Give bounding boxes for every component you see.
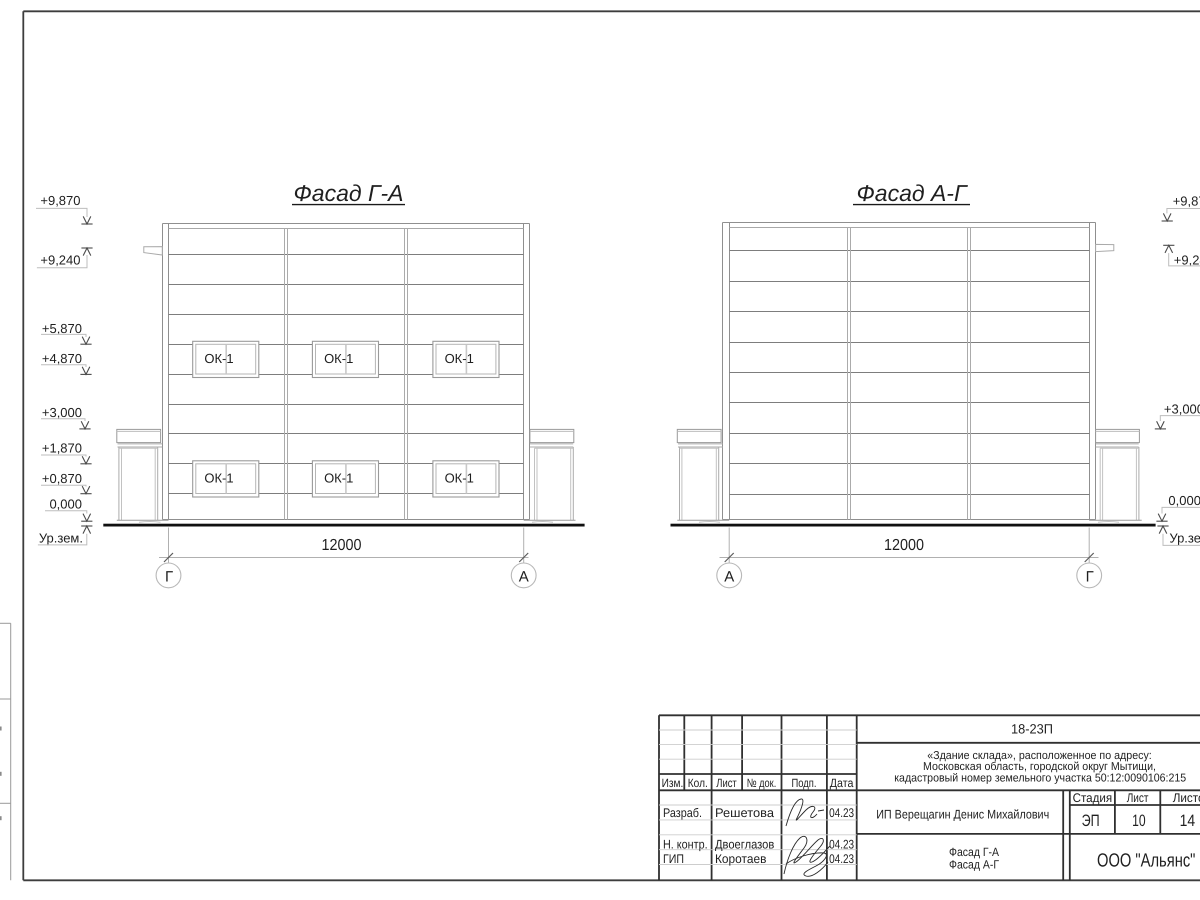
svg-text:12000: 12000 xyxy=(322,537,362,554)
svg-text:Стадия: Стадия xyxy=(1073,791,1113,805)
svg-text:ОК-1: ОК-1 xyxy=(324,471,353,486)
svg-text:Коротаев: Коротаев xyxy=(715,852,767,866)
svg-text:+9,240: +9,240 xyxy=(1174,253,1200,268)
svg-text:04.23: 04.23 xyxy=(829,837,854,851)
svg-text:18-23П: 18-23П xyxy=(1011,722,1053,737)
svg-text:0,000: 0,000 xyxy=(1168,493,1200,508)
svg-text:+5,870: +5,870 xyxy=(42,321,82,336)
svg-text:ИП Верещагин Денис Михайлович: ИП Верещагин Денис Михайлович xyxy=(876,807,1049,821)
svg-text:Г: Г xyxy=(1086,569,1094,586)
svg-text:ОК-1: ОК-1 xyxy=(204,351,233,366)
svg-text:ГИП: ГИП xyxy=(663,852,684,866)
svg-text:+9,240: +9,240 xyxy=(40,252,80,267)
svg-text:Московская область, городской: Московская область, городской округ Мыти… xyxy=(923,761,1156,773)
svg-text:Ур.зем.: Ур.зем. xyxy=(1169,531,1200,546)
svg-text:Фасад Г-А: Фасад Г-А xyxy=(294,180,404,206)
svg-text:Разраб.: Разраб. xyxy=(663,806,702,820)
svg-text:04.23: 04.23 xyxy=(829,806,854,820)
svg-text:А: А xyxy=(519,569,529,586)
svg-text:04.23: 04.23 xyxy=(829,852,854,866)
svg-text:ОК-1: ОК-1 xyxy=(445,471,474,486)
svg-text:ОК-1: ОК-1 xyxy=(324,351,353,366)
svg-text:12000: 12000 xyxy=(884,537,924,554)
svg-text:ООО "Альянс": ООО "Альянс" xyxy=(1097,851,1195,872)
svg-text:Решетова: Решетова xyxy=(715,806,774,820)
svg-text:Кол.: Кол. xyxy=(688,776,708,790)
svg-text:Дата: Дата xyxy=(830,776,854,790)
svg-text:Фасад А-Г: Фасад А-Г xyxy=(857,180,968,206)
svg-text:Фасад А-Г: Фасад А-Г xyxy=(949,857,999,871)
svg-text:Лист: Лист xyxy=(716,776,737,790)
svg-text:Изм.: Изм. xyxy=(662,776,684,790)
svg-text:№ док.: № док. xyxy=(747,776,777,790)
svg-text:кадастровый номер земельного у: кадастровый номер земельного участка 50:… xyxy=(894,772,1186,784)
svg-text:Лист: Лист xyxy=(1127,791,1149,805)
svg-text:+0,870: +0,870 xyxy=(42,471,82,486)
svg-text:Подп.: Подп. xyxy=(792,776,817,790)
svg-text:+4,870: +4,870 xyxy=(42,351,82,366)
svg-text:ОК-1: ОК-1 xyxy=(445,351,474,366)
svg-text:Г: Г xyxy=(165,569,173,586)
svg-text:Н. контр.: Н. контр. xyxy=(663,837,708,851)
svg-text:+9,870: +9,870 xyxy=(1173,194,1200,209)
svg-text:10: 10 xyxy=(1132,812,1146,830)
svg-text:+3,000: +3,000 xyxy=(1164,401,1200,416)
svg-text:+3,000: +3,000 xyxy=(42,405,82,420)
svg-text:Двоеглазов: Двоеглазов xyxy=(715,837,775,851)
svg-text:0,000: 0,000 xyxy=(49,497,82,512)
svg-text:А: А xyxy=(724,569,734,586)
svg-text:Листов: Листов xyxy=(1173,791,1200,805)
svg-text:14: 14 xyxy=(1180,812,1196,830)
svg-text:ОК-1: ОК-1 xyxy=(204,471,233,486)
svg-text:Ур.зем.: Ур.зем. xyxy=(39,531,83,546)
svg-text:+9,870: +9,870 xyxy=(40,193,80,208)
svg-text:+1,870: +1,870 xyxy=(42,441,82,456)
svg-text:ЭП: ЭП xyxy=(1082,812,1100,830)
